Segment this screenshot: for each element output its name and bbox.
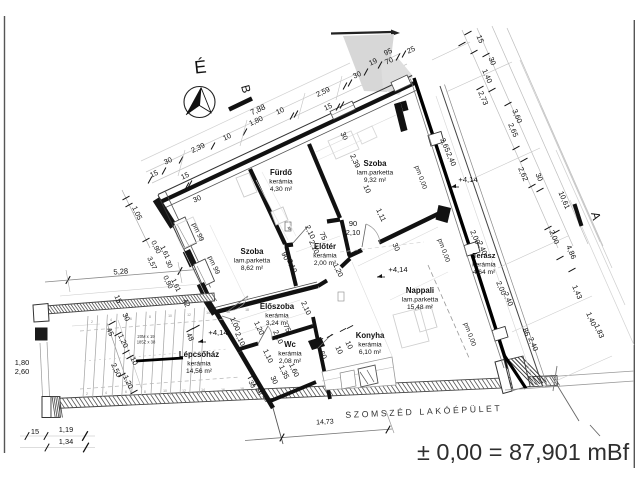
svg-text:10: 10 xyxy=(343,339,355,350)
svg-text:16: 16 xyxy=(221,388,225,392)
svg-text:12: 12 xyxy=(187,313,191,317)
svg-text:75: 75 xyxy=(317,230,329,241)
svg-text:30: 30 xyxy=(268,374,280,385)
svg-text:4,86: 4,86 xyxy=(564,244,578,261)
svg-text:kerámia: kerámia xyxy=(313,252,337,259)
svg-text:8,62 m²: 8,62 m² xyxy=(241,265,264,272)
svg-text:kerámia: kerámia xyxy=(187,360,211,367)
svg-text:20M x 19: 20M x 19 xyxy=(137,334,155,339)
svg-text:18: 18 xyxy=(240,387,244,391)
svg-text:Terasz: Terasz xyxy=(473,251,496,260)
svg-text:1,83: 1,83 xyxy=(592,323,606,340)
svg-text:Szoba: Szoba xyxy=(364,159,388,168)
svg-text:B: B xyxy=(238,83,254,94)
svg-text:30: 30 xyxy=(487,55,499,66)
svg-text:Fürdő: Fürdő xyxy=(270,168,292,177)
svg-text:2: 2 xyxy=(86,392,88,396)
svg-text:2,00: 2,00 xyxy=(547,229,561,246)
svg-text:1,00: 1,00 xyxy=(228,316,242,333)
svg-text:14: 14 xyxy=(201,388,205,392)
svg-text:+4,14: +4,14 xyxy=(458,175,477,184)
svg-text:6,10 m²: 6,10 m² xyxy=(359,349,382,356)
svg-text:8: 8 xyxy=(144,390,146,394)
svg-text:1,20: 1,20 xyxy=(116,333,130,350)
svg-text:pm 0,00: pm 0,00 xyxy=(413,165,428,191)
svg-text:3,57: 3,57 xyxy=(145,256,157,271)
svg-text:Lépcsőház: Lépcsőház xyxy=(179,350,219,359)
svg-text:18: 18 xyxy=(245,308,249,312)
svg-text:+4,14: +4,14 xyxy=(208,328,227,337)
svg-text:Konyha: Konyha xyxy=(356,331,385,340)
svg-text:48: 48 xyxy=(184,331,196,342)
svg-text:1,20: 1,20 xyxy=(252,320,266,337)
svg-text:15: 15 xyxy=(148,168,159,180)
svg-text:1,34: 1,34 xyxy=(59,437,73,446)
svg-text:Előtér: Előtér xyxy=(314,242,336,251)
svg-text:10: 10 xyxy=(168,314,172,318)
svg-text:10: 10 xyxy=(333,344,345,355)
svg-text:30: 30 xyxy=(162,155,173,167)
svg-text:14,56 m²: 14,56 m² xyxy=(186,368,213,375)
svg-text:1,80: 1,80 xyxy=(248,114,265,128)
svg-text:Wc: Wc xyxy=(284,340,296,349)
svg-text:15: 15 xyxy=(475,33,487,44)
svg-text:4: 4 xyxy=(105,391,107,395)
svg-text:pm 0,00: pm 0,00 xyxy=(462,322,477,348)
svg-text:4,64 m²: 4,64 m² xyxy=(473,269,496,276)
svg-text:1,19: 1,19 xyxy=(59,425,73,434)
svg-text:kerámia: kerámia xyxy=(472,261,496,268)
svg-text:15,48 m²: 15,48 m² xyxy=(407,304,434,311)
svg-text:4,30 m²: 4,30 m² xyxy=(270,186,293,193)
svg-text:lam.parketta: lam.parketta xyxy=(402,296,439,303)
svg-text:Előszoba: Előszoba xyxy=(260,302,295,311)
svg-text:2: 2 xyxy=(91,320,93,324)
svg-text:2,73: 2,73 xyxy=(476,90,490,107)
svg-text:2,40: 2,40 xyxy=(526,336,540,353)
svg-text:1,10: 1,10 xyxy=(261,348,275,365)
svg-text:± 0,00 = 87,901 mBf: ± 0,00 = 87,901 mBf xyxy=(417,439,630,465)
svg-text:15: 15 xyxy=(31,427,39,436)
svg-text:2,39: 2,39 xyxy=(348,153,362,170)
svg-text:+4,14: +4,14 xyxy=(388,265,407,274)
svg-text:4: 4 xyxy=(110,318,112,322)
svg-text:2,40: 2,40 xyxy=(444,151,458,168)
svg-text:30: 30 xyxy=(164,259,174,269)
svg-text:Szoba: Szoba xyxy=(241,247,265,256)
svg-text:É: É xyxy=(193,56,207,77)
svg-text:kerámia: kerámia xyxy=(358,341,382,348)
svg-text:1,40: 1,40 xyxy=(480,68,494,85)
svg-text:9,32 m²: 9,32 m² xyxy=(364,177,387,184)
svg-text:6: 6 xyxy=(130,317,132,321)
svg-text:lam.parketta: lam.parketta xyxy=(357,169,394,176)
svg-text:kerámia: kerámia xyxy=(278,350,302,357)
svg-text:10,61: 10,61 xyxy=(557,190,573,211)
svg-text:10: 10 xyxy=(361,183,373,194)
svg-text:90: 90 xyxy=(349,219,357,228)
svg-text:SZOMSZÉD LAKÓÉPÜLET: SZOMSZÉD LAKÓÉPÜLET xyxy=(345,403,502,420)
svg-text:2,08 m²: 2,08 m² xyxy=(279,358,302,365)
svg-text:30: 30 xyxy=(534,171,546,182)
svg-text:2,39: 2,39 xyxy=(190,141,207,155)
svg-text:25: 25 xyxy=(405,44,416,56)
svg-text:1,11: 1,11 xyxy=(374,207,388,223)
svg-text:10: 10 xyxy=(274,105,285,117)
svg-text:2,00 m²: 2,00 m² xyxy=(314,260,337,267)
svg-text:A: A xyxy=(588,210,604,221)
svg-text:2,10: 2,10 xyxy=(285,258,299,275)
svg-text:10: 10 xyxy=(163,389,167,393)
svg-text:185Z x 38: 185Z x 38 xyxy=(137,340,156,345)
svg-text:Nappali: Nappali xyxy=(406,286,434,295)
svg-text:30: 30 xyxy=(390,241,402,252)
svg-text:6: 6 xyxy=(125,390,127,394)
svg-text:1,05: 1,05 xyxy=(130,205,144,222)
svg-text:14: 14 xyxy=(206,311,210,315)
svg-text:kerámia: kerámia xyxy=(269,178,293,185)
svg-text:2,60: 2,60 xyxy=(15,367,29,376)
svg-text:lam.parketta: lam.parketta xyxy=(234,257,271,264)
svg-text:2,10: 2,10 xyxy=(299,300,313,317)
svg-text:pm 0,00: pm 0,00 xyxy=(436,238,451,264)
svg-text:12: 12 xyxy=(182,389,186,393)
svg-text:8: 8 xyxy=(149,315,151,319)
svg-text:30: 30 xyxy=(191,193,202,205)
svg-text:5,28: 5,28 xyxy=(113,266,129,276)
svg-text:kerámia: kerámia xyxy=(265,312,289,319)
svg-text:1,43: 1,43 xyxy=(570,284,584,301)
svg-text:2,10: 2,10 xyxy=(346,228,360,237)
svg-text:1,80: 1,80 xyxy=(15,358,29,367)
svg-text:16: 16 xyxy=(226,310,230,314)
svg-text:14,73: 14,73 xyxy=(316,419,334,427)
svg-text:3,24 m²: 3,24 m² xyxy=(266,320,289,327)
svg-text:1,20: 1,20 xyxy=(121,374,135,391)
